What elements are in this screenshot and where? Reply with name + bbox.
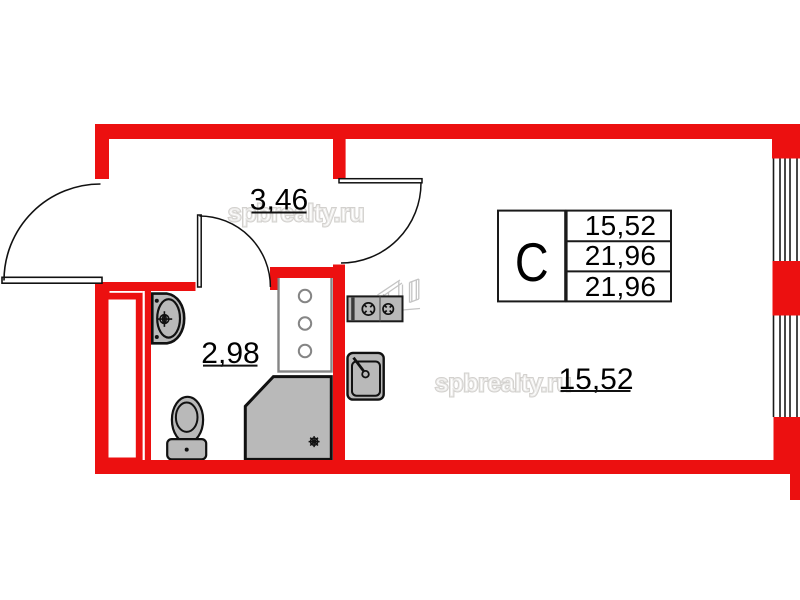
svg-text:21,96: 21,96 [585, 271, 657, 302]
svg-text:21,96: 21,96 [585, 240, 657, 271]
svg-text:15,52: 15,52 [585, 210, 657, 241]
svg-text:spbrealty.ru: spbrealty.ru [435, 370, 571, 398]
svg-text:С: С [515, 231, 549, 292]
